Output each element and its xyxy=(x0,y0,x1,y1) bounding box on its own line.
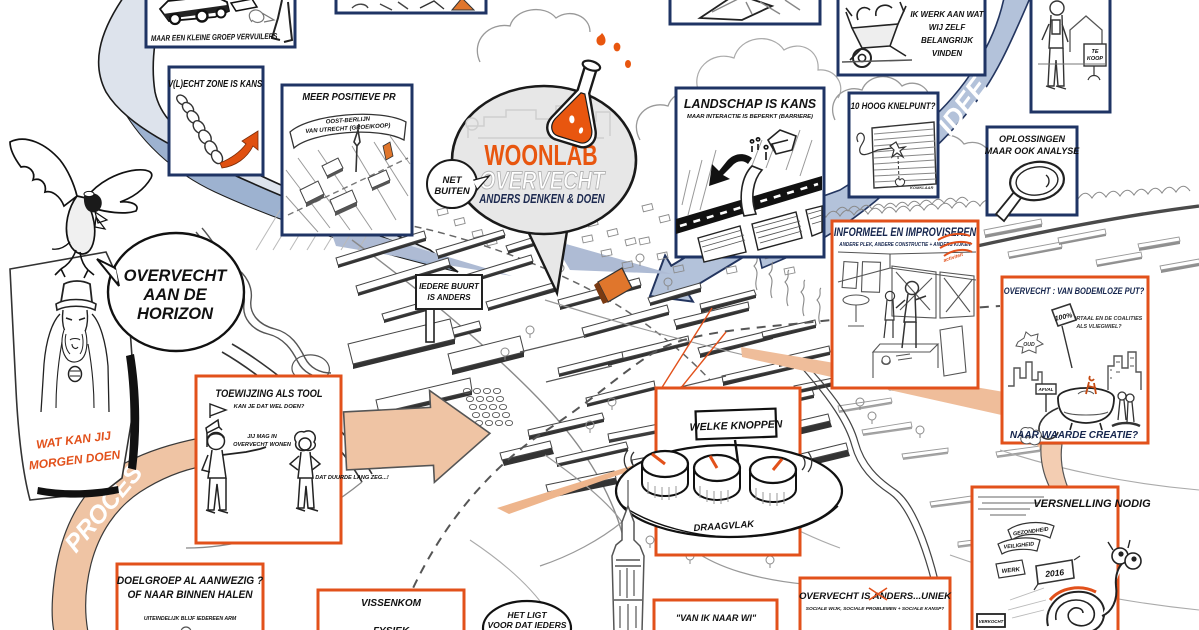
svg-text:JIJ MAG IN: JIJ MAG IN xyxy=(247,434,277,440)
svg-text:UITEINDELIJK BLIJF IEDEREEN AR: UITEINDELIJK BLIJF IEDEREEN ARM xyxy=(144,616,237,622)
svg-text:DOELGROEP AL AANWEZIG ?: DOELGROEP AL AANWEZIG ? xyxy=(117,575,264,587)
svg-text:OUD: OUD xyxy=(1023,342,1035,348)
svg-text:AAN DE: AAN DE xyxy=(142,286,207,304)
svg-text:WIJ ZELF: WIJ ZELF xyxy=(929,23,967,32)
svg-text:VOOR DAT IEDERS: VOOR DAT IEDERS xyxy=(487,620,566,630)
svg-text:"VAN IK NAAR WI": "VAN IK NAAR WI" xyxy=(676,613,757,623)
svg-text:ALS VLIEGWIEL?: ALS VLIEGWIEL? xyxy=(1075,324,1122,330)
svg-text:TE: TE xyxy=(1091,49,1098,55)
svg-text:IS ANDERS: IS ANDERS xyxy=(427,293,471,302)
svg-text:VINDEN: VINDEN xyxy=(932,49,962,58)
svg-text:MAAR INTERACTIE IS BEPERKT (BA: MAAR INTERACTIE IS BEPERKT (BARRIERE) xyxy=(687,114,813,120)
svg-text:NET: NET xyxy=(443,175,463,186)
svg-text:OVERVECHT: OVERVECHT xyxy=(124,267,229,285)
svg-text:10 HOOG KNELPUNT?: 10 HOOG KNELPUNT? xyxy=(851,100,936,111)
svg-text:OPLOSSINGEN: OPLOSSINGEN xyxy=(999,134,1066,144)
svg-text:DAT DUURDE LANG ZEG...!: DAT DUURDE LANG ZEG...! xyxy=(315,475,389,481)
svg-text:FYSIEK: FYSIEK xyxy=(373,626,410,630)
svg-text:VISSENKOM: VISSENKOM xyxy=(361,598,422,609)
svg-text:ANDERS DENKEN & DOEN: ANDERS DENKEN & DOEN xyxy=(478,193,605,206)
svg-text:OVERVECHT : VAN BODEMLOZE PUT?: OVERVECHT : VAN BODEMLOZE PUT? xyxy=(1004,285,1145,296)
svg-text:BELANGRIJK: BELANGRIJK xyxy=(921,36,974,45)
svg-text:LANDSCHAP IS KANS: LANDSCHAP IS KANS xyxy=(684,97,817,111)
svg-text:AFVAL: AFVAL xyxy=(1038,387,1054,392)
svg-text:BUITEN: BUITEN xyxy=(434,186,471,197)
svg-text:OVERVECHT: OVERVECHT xyxy=(480,167,606,195)
svg-text:HET LIGT: HET LIGT xyxy=(507,610,547,620)
svg-text:OVERVECHT WONEN: OVERVECHT WONEN xyxy=(233,442,292,448)
svg-text:NAAR WAARDE CREATIE?: NAAR WAARDE CREATIE? xyxy=(1010,430,1138,441)
svg-text:OF NAAR BINNEN HALEN: OF NAAR BINNEN HALEN xyxy=(127,589,252,601)
svg-text:MAAR OOK ANALYSE: MAAR OOK ANALYSE xyxy=(985,146,1080,156)
svg-text:HORIZON: HORIZON xyxy=(137,305,214,323)
svg-text:VERSNELLING NODIG: VERSNELLING NODIG xyxy=(1033,498,1151,510)
svg-text:MEER POSITIEVE PR: MEER POSITIEVE PR xyxy=(302,92,396,104)
svg-text:KOOP: KOOP xyxy=(1087,56,1104,62)
svg-text:KAN JE DAT WEL DOEN?: KAN JE DAT WEL DOEN? xyxy=(234,404,305,410)
svg-text:IK WERK AAN WAT: IK WERK AAN WAT xyxy=(910,10,984,19)
svg-text:KOMKLAAR: KOMKLAAR xyxy=(910,185,933,190)
svg-text:VERKOCHT: VERKOCHT xyxy=(979,619,1004,624)
svg-text:2016: 2016 xyxy=(1044,567,1065,579)
svg-text:SOCIALE WIJK, SOCIALE PROBLEME: SOCIALE WIJK, SOCIALE PROBLEMEN + SOCIAL… xyxy=(806,606,945,612)
svg-text:V(L)ECHT ZONE IS KANS: V(L)ECHT ZONE IS KANS xyxy=(168,78,262,89)
svg-text:IEDERE BUURT: IEDERE BUURT xyxy=(419,282,480,291)
svg-text:TOEWIJZING ALS TOOL: TOEWIJZING ALS TOOL xyxy=(215,388,322,400)
